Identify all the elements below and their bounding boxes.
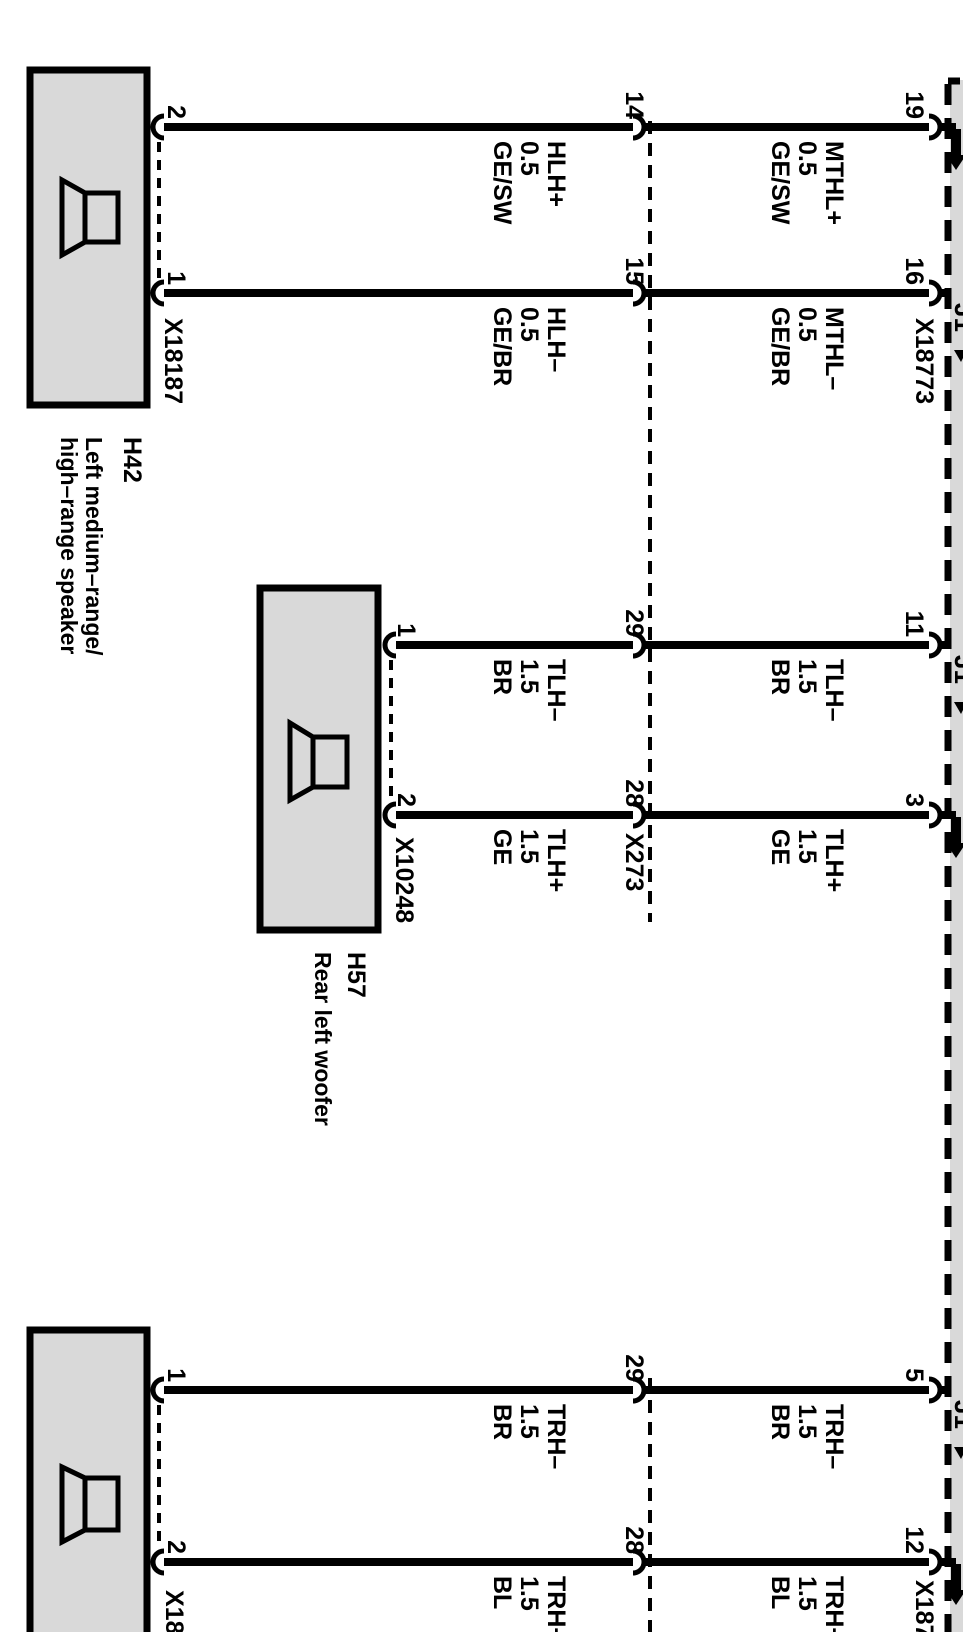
connector-label-x181: X181 bbox=[160, 1590, 187, 1632]
amp-pin-cup bbox=[929, 1551, 940, 1573]
wire-color: GE/SW bbox=[766, 141, 793, 224]
connector-label-x18773: X18773 bbox=[910, 318, 937, 404]
wire-gauge: 0.5 bbox=[515, 307, 542, 342]
inline-pin-cup bbox=[633, 1551, 644, 1573]
amp-pin-number: 16 bbox=[900, 205, 927, 285]
speaker-pin-number: 1 bbox=[162, 205, 189, 285]
component-id-h42: H42 bbox=[118, 437, 145, 483]
inline-pin-cup bbox=[633, 116, 644, 138]
wire-name: TLH+ bbox=[542, 829, 569, 892]
amp-pin-cup bbox=[929, 634, 940, 656]
speaker-icon bbox=[62, 1467, 118, 1542]
speaker-pin-number: 2 bbox=[162, 39, 189, 119]
wire-name: TLH+ bbox=[820, 829, 847, 892]
speaker-pin-cup bbox=[153, 1551, 164, 1573]
wire-name: MTHL+ bbox=[820, 141, 847, 225]
wire-name: MTHL– bbox=[820, 307, 847, 390]
wire-color: GE bbox=[488, 829, 515, 865]
speaker-pin-number: 1 bbox=[162, 1302, 189, 1382]
wire-gauge: 1.5 bbox=[515, 1576, 542, 1611]
connector-label-x273: X273 bbox=[620, 833, 647, 891]
wire-color: BL bbox=[488, 1576, 515, 1609]
wire-color: BL bbox=[766, 1576, 793, 1609]
wire-color: BR bbox=[766, 659, 793, 695]
connector-label-x187: X187 bbox=[910, 1580, 937, 1632]
amp-pin-cup bbox=[929, 1379, 940, 1401]
wire-color: BR bbox=[766, 1404, 793, 1440]
inline-pin-cup bbox=[633, 804, 644, 826]
inline-pin-number: 29 bbox=[620, 557, 647, 637]
wire-color: BR bbox=[488, 1404, 515, 1440]
diagram-canvas: 2 14 19 HLH+ 0.5 GE/SW MTHL+ 0.5 GE/SW 1… bbox=[0, 0, 963, 1632]
inline-pin-number: 14 bbox=[620, 39, 647, 119]
inline-pin-number: 15 bbox=[620, 205, 647, 285]
amp-pin-cup bbox=[929, 804, 940, 826]
wire-name: HLH– bbox=[542, 307, 569, 372]
wire-gauge: 1.5 bbox=[515, 829, 542, 864]
wire-name: TRH– bbox=[820, 1404, 847, 1469]
wire-gauge: 0.5 bbox=[793, 141, 820, 176]
wire-gauge: 1.5 bbox=[793, 1404, 820, 1439]
amp-pin-number: 3 bbox=[900, 727, 927, 807]
inline-pin-cup bbox=[633, 282, 644, 304]
component-desc-line: Left medium–range/ bbox=[81, 437, 106, 656]
speaker-pin-cup bbox=[385, 634, 396, 656]
wire-color: BR bbox=[488, 659, 515, 695]
amp-internal-label-fragment: J1 bbox=[951, 655, 963, 684]
connector-label-x10248: X10248 bbox=[390, 837, 417, 923]
speaker-pin-cup bbox=[153, 116, 164, 138]
speaker-pin-cup bbox=[153, 1379, 164, 1401]
wire-name: TRH+ bbox=[542, 1576, 569, 1632]
wire-color: GE/BR bbox=[488, 307, 515, 386]
wire-name: TLH– bbox=[542, 659, 569, 722]
wire-gauge: 1.5 bbox=[793, 1576, 820, 1611]
amp-pin-cup bbox=[929, 116, 940, 138]
wire-gauge: 1.5 bbox=[515, 1404, 542, 1439]
wire-color: GE bbox=[766, 829, 793, 865]
inline-pin-cup bbox=[633, 1379, 644, 1401]
component-desc-line: high–range speaker bbox=[56, 437, 81, 654]
speaker-pin-number: 2 bbox=[392, 727, 419, 807]
wire-gauge: 0.5 bbox=[515, 141, 542, 176]
component-desc-line: Rear left woofer bbox=[310, 952, 335, 1126]
wire-name: TRH– bbox=[542, 1404, 569, 1469]
speaker-pin-cup bbox=[385, 804, 396, 826]
inline-pin-cup bbox=[633, 634, 644, 656]
wire-name: TLH– bbox=[820, 659, 847, 722]
wire-gauge: 0.5 bbox=[793, 307, 820, 342]
wire-name: TRH+ bbox=[820, 1576, 847, 1632]
wire-name: HLH+ bbox=[542, 141, 569, 207]
amp-pin-number: 19 bbox=[900, 39, 927, 119]
wire-color: GE/SW bbox=[488, 141, 515, 224]
diagram-graphics bbox=[0, 0, 963, 1632]
speaker-icon bbox=[62, 180, 118, 255]
inline-pin-number: 28 bbox=[620, 727, 647, 807]
wire-color: GE/BR bbox=[766, 307, 793, 386]
speaker-pin-number: 2 bbox=[162, 1474, 189, 1554]
wire-gauge: 1.5 bbox=[793, 659, 820, 694]
inline-pin-number: 28 bbox=[620, 1474, 647, 1554]
wire-gauge: 1.5 bbox=[515, 659, 542, 694]
speaker-pin-cup bbox=[153, 282, 164, 304]
speaker-icon bbox=[290, 723, 347, 800]
amp-pin-number: 11 bbox=[900, 557, 927, 637]
connector-label-x18187: X18187 bbox=[159, 318, 186, 404]
amp-pin-number: 5 bbox=[900, 1302, 927, 1382]
amp-internal-label-fragment: J1 bbox=[951, 1400, 963, 1429]
inline-pin-number: 29 bbox=[620, 1302, 647, 1382]
amp-pin-cup bbox=[929, 282, 940, 304]
amp-internal-label-fragment: J1 bbox=[951, 303, 963, 332]
speaker-pin-number: 1 bbox=[392, 557, 419, 637]
component-id-h57: H57 bbox=[342, 952, 369, 998]
amp-pin-number: 12 bbox=[900, 1474, 927, 1554]
wiring-diagram-page: 2 14 19 HLH+ 0.5 GE/SW MTHL+ 0.5 GE/SW 1… bbox=[0, 0, 963, 1632]
wire-gauge: 1.5 bbox=[793, 829, 820, 864]
